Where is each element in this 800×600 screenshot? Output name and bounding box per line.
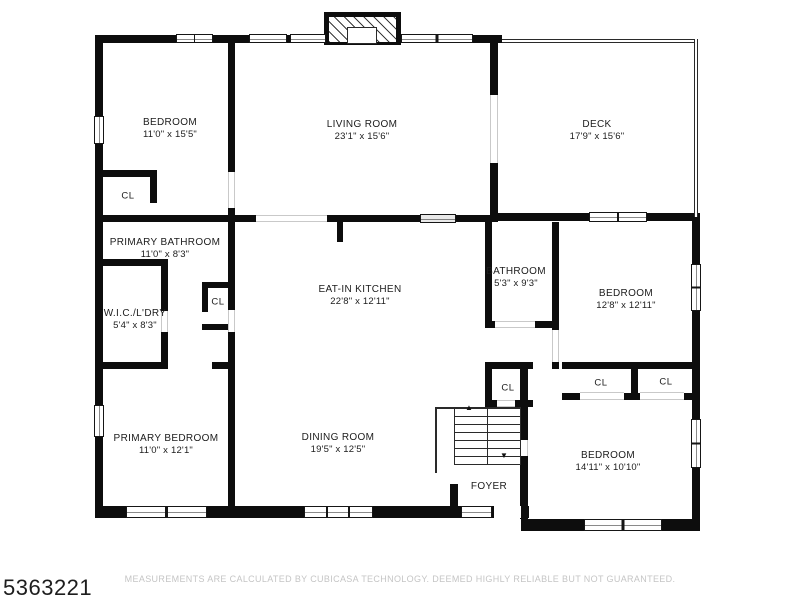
- closet-label: CL: [211, 297, 224, 308]
- window: [176, 34, 213, 43]
- room-label-bedroom-right: BEDROOM 12'8" x 12'11": [596, 288, 655, 312]
- room-name: DINING ROOM: [302, 432, 375, 444]
- fireplace-firebox: [347, 27, 377, 44]
- stair-railing: [435, 407, 437, 473]
- window: [94, 405, 104, 437]
- door-stairs-closet: [497, 400, 515, 407]
- window: [461, 506, 492, 518]
- room-label-bedroom-br: BEDROOM 14'11" x 10'10": [576, 450, 641, 474]
- stairs-down-arrow-icon: ▼: [500, 452, 508, 460]
- room-label-foyer: FOYER: [471, 481, 507, 493]
- room-label-living: LIVING ROOM 23'1" x 15'6": [327, 119, 398, 143]
- room-name: DECK: [570, 119, 625, 131]
- wall-main-vertical: [228, 222, 235, 518]
- wall-kitchen-stub: [337, 222, 343, 242]
- room-name: LIVING ROOM: [327, 119, 398, 131]
- room-dims: 22'8" x 12'11": [318, 296, 401, 308]
- room-dims: 11'0" x 12'1": [114, 445, 219, 457]
- front-door-opening: [494, 506, 521, 518]
- room-label-bedroom-tl: BEDROOM 11'0" x 15'5": [143, 117, 197, 141]
- door-bedroom-tl: [228, 172, 235, 208]
- wall-living-deck-upper: [490, 35, 498, 95]
- window: [126, 506, 207, 518]
- room-label-primary-bathroom: PRIMARY BATHROOM 11'0" x 8'3": [110, 237, 221, 261]
- room-dims: 19'5" x 12'5": [302, 444, 375, 456]
- closet-label: CL: [501, 383, 514, 394]
- room-label-primary-bedroom: PRIMARY BEDROOM 11'0" x 12'1": [114, 433, 219, 457]
- room-dims: 5'4" x 8'3": [104, 320, 167, 332]
- disclaimer-text: MEASUREMENTS ARE CALCULATED BY CUBICASA …: [125, 574, 676, 584]
- room-name: FOYER: [471, 481, 507, 493]
- wall-living-deck-lower: [490, 163, 498, 221]
- room-name: W.I.C./L'DRY: [104, 308, 167, 320]
- wall-hall-closet-top: [202, 282, 235, 288]
- door-bathroom: [495, 321, 535, 328]
- window: [249, 34, 287, 43]
- room-label-eat-in-kitchen: EAT-IN KITCHEN 22'8" x 12'11": [318, 284, 401, 308]
- floor-plan: ▲ ▼ BEDROOM 11'0" x 15'5" LIVING ROOM 23…: [0, 0, 800, 600]
- deck-edge-top: [502, 39, 698, 43]
- room-label-bathroom: BATHROOM 5'3" x 9'3": [486, 266, 546, 290]
- room-name: BEDROOM: [143, 117, 197, 129]
- opening-living-kitchen: [256, 215, 327, 222]
- door-closet1: [580, 392, 624, 400]
- room-dims: 23'1" x 15'6": [327, 131, 398, 143]
- wall-closet-tl-right: [150, 170, 157, 203]
- door-hall-kitchen: [228, 310, 235, 332]
- room-label-wic-laundry: W.I.C./L'DRY 5'4" x 8'3": [104, 308, 167, 332]
- stairs-flight-up: [454, 407, 488, 465]
- wall-hall-bottom-right: [562, 362, 693, 369]
- room-label-dining: DINING ROOM 19'5" x 12'5": [302, 432, 375, 456]
- window: [304, 506, 373, 518]
- window: [691, 419, 701, 468]
- room-dims: 17'9" x 15'6": [570, 131, 625, 143]
- room-dims: 14'11" x 10'10": [576, 462, 641, 474]
- room-dims: 12'8" x 12'11": [596, 300, 655, 312]
- room-dims: 5'3" x 9'3": [486, 278, 546, 290]
- closet-label: CL: [594, 378, 607, 389]
- deck-edge-right: [694, 39, 698, 217]
- wall-closet-tl-top: [95, 170, 157, 177]
- room-name: BEDROOM: [576, 450, 641, 462]
- closet-label: CL: [121, 191, 134, 202]
- window: [691, 264, 701, 311]
- window: [584, 519, 662, 531]
- door-living-deck-slider: [490, 95, 498, 163]
- door-foyer-bedroom: [520, 440, 528, 456]
- kitchen-pass-window: [420, 214, 456, 223]
- room-name: PRIMARY BATHROOM: [110, 237, 221, 249]
- window: [401, 34, 473, 43]
- window: [290, 34, 326, 43]
- room-name: EAT-IN KITCHEN: [318, 284, 401, 296]
- wall-right-exterior: [692, 215, 700, 531]
- listing-id: 5363221: [3, 575, 92, 600]
- room-name: PRIMARY BEDROOM: [114, 433, 219, 445]
- door-bedroom-right: [552, 330, 559, 362]
- wall-dining-foyer: [450, 484, 458, 518]
- room-label-deck: DECK 17'9" x 15'6": [570, 119, 625, 143]
- closet-label: CL: [659, 377, 672, 388]
- wall-left-exterior: [95, 35, 103, 518]
- room-name: BATHROOM: [486, 266, 546, 278]
- deck-sliding-door: [589, 212, 647, 222]
- room-name: BEDROOM: [596, 288, 655, 300]
- room-dims: 11'0" x 8'3": [110, 249, 221, 261]
- wall-closets-bottom-mid: [624, 393, 640, 400]
- wall-closet2-bottom: [684, 393, 700, 400]
- stairs-up-arrow-icon: ▲: [465, 404, 473, 412]
- room-dims: 11'0" x 15'5": [143, 129, 197, 141]
- fireplace: [324, 12, 401, 45]
- window: [94, 116, 104, 144]
- wall-closet1-bottom: [562, 393, 582, 400]
- door-closet2: [640, 392, 684, 400]
- wall-wic-primarybed: [95, 362, 168, 369]
